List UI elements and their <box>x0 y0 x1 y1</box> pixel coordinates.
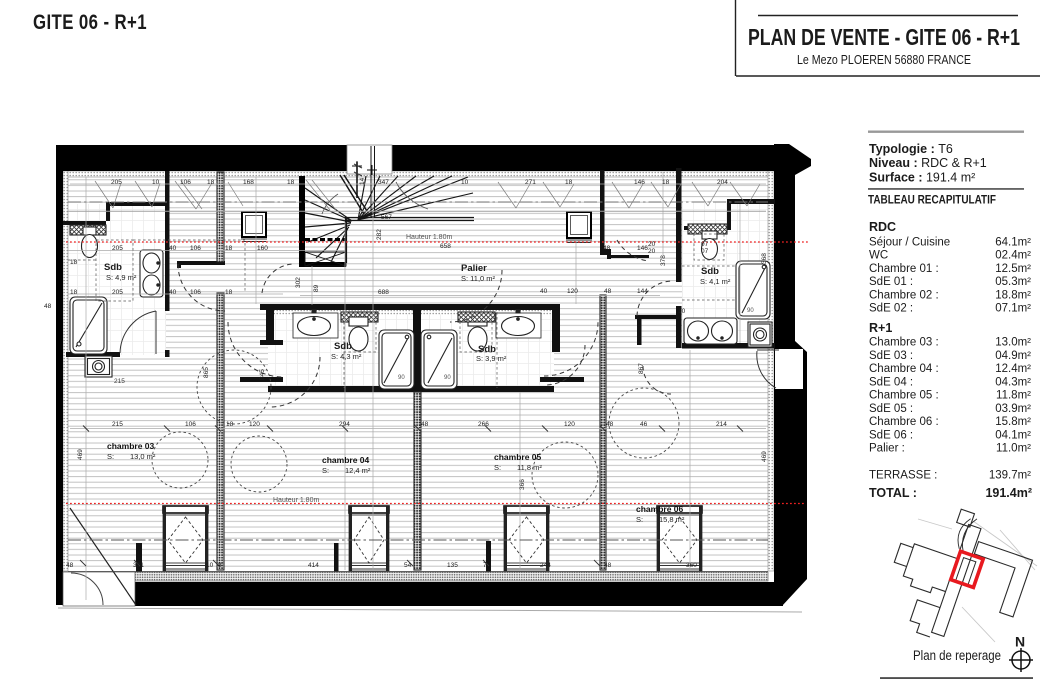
svg-text:12,4 m²: 12,4 m² <box>345 466 371 475</box>
svg-text:S:: S: <box>107 452 114 461</box>
svg-text:40: 40 <box>169 289 177 296</box>
svg-text:214: 214 <box>716 421 727 428</box>
svg-text:Niveau : RDC & R+1: Niveau : RDC & R+1 <box>869 156 987 170</box>
svg-text:Sdb: Sdb <box>104 262 122 273</box>
svg-text:90: 90 <box>444 375 451 381</box>
svg-text:48: 48 <box>604 562 612 569</box>
svg-text:106: 106 <box>190 289 201 296</box>
svg-text:48: 48 <box>603 245 611 252</box>
svg-text:867: 867 <box>638 363 645 374</box>
svg-text:205: 205 <box>112 289 123 296</box>
svg-text:07: 07 <box>701 241 709 248</box>
svg-text:SdE 05 :: SdE 05 : <box>869 403 913 415</box>
svg-text:10: 10 <box>206 562 214 569</box>
svg-text:469: 469 <box>77 449 84 460</box>
svg-text:106: 106 <box>190 245 201 252</box>
svg-text:135: 135 <box>447 562 458 569</box>
svg-text:chambre 06: chambre 06 <box>636 504 684 514</box>
svg-text:Chambre 03 :: Chambre 03 : <box>869 337 939 349</box>
svg-text:18: 18 <box>225 289 233 296</box>
svg-text:18: 18 <box>226 421 234 428</box>
svg-text:Hauteur 1.80m: Hauteur 1.80m <box>273 497 319 504</box>
svg-text:S: 4,3 m²: S: 4,3 m² <box>331 352 362 361</box>
svg-text:567: 567 <box>381 214 392 221</box>
svg-text:48: 48 <box>66 562 74 569</box>
svg-text:SdE 06 :: SdE 06 : <box>869 429 913 441</box>
svg-text:Sdb: Sdb <box>701 266 719 277</box>
svg-text:Palier :: Palier : <box>869 443 905 455</box>
svg-text:RDC: RDC <box>869 220 896 234</box>
svg-text:294: 294 <box>339 421 350 428</box>
svg-text:10: 10 <box>152 179 160 186</box>
svg-text:Chambre 06 :: Chambre 06 : <box>869 416 939 428</box>
svg-text:106: 106 <box>180 179 191 186</box>
svg-text:48: 48 <box>604 288 612 295</box>
svg-text:S: 4,1 m²: S: 4,1 m² <box>700 277 731 286</box>
svg-text:40: 40 <box>540 288 548 295</box>
svg-text:13,0 m²: 13,0 m² <box>130 452 156 461</box>
svg-text:18: 18 <box>225 245 233 252</box>
svg-text:R+1: R+1 <box>869 321 892 335</box>
svg-text:658: 658 <box>440 243 451 250</box>
svg-text:18: 18 <box>287 179 295 186</box>
svg-text:302: 302 <box>295 277 302 288</box>
svg-text:168: 168 <box>243 179 254 186</box>
svg-text:WC: WC <box>869 250 888 262</box>
svg-text:SdE 03 :: SdE 03 : <box>869 350 913 362</box>
svg-text:12.5m²: 12.5m² <box>995 263 1031 275</box>
svg-text:15,8 m²: 15,8 m² <box>659 515 685 524</box>
svg-text:S:: S: <box>494 463 501 472</box>
svg-text:S: 3,9 m²: S: 3,9 m² <box>476 354 507 363</box>
svg-text:139.7m²: 139.7m² <box>989 469 1031 481</box>
svg-text:05.3m²: 05.3m² <box>995 276 1031 288</box>
svg-text:11.0m²: 11.0m² <box>996 443 1031 455</box>
svg-text:89: 89 <box>313 284 320 292</box>
svg-text:368: 368 <box>761 253 768 264</box>
svg-text:18: 18 <box>207 179 215 186</box>
svg-text:271: 271 <box>525 179 536 186</box>
svg-text:146: 146 <box>637 245 648 252</box>
svg-text:07.1m²: 07.1m² <box>995 303 1031 315</box>
svg-text:04.1m²: 04.1m² <box>995 429 1031 441</box>
svg-text:469: 469 <box>761 451 768 462</box>
svg-text:46: 46 <box>640 421 648 428</box>
svg-text:204: 204 <box>717 179 728 186</box>
svg-text:15.8m²: 15.8m² <box>995 416 1031 428</box>
svg-text:414: 414 <box>308 562 319 569</box>
svg-text:18: 18 <box>70 289 78 296</box>
svg-text:chambre 05: chambre 05 <box>494 452 542 462</box>
svg-text:07: 07 <box>701 248 709 255</box>
svg-text:13.0m²: 13.0m² <box>995 337 1031 349</box>
svg-text:10: 10 <box>678 308 686 315</box>
svg-text:282: 282 <box>376 229 383 240</box>
svg-text:54: 54 <box>404 562 412 569</box>
svg-text:S:: S: <box>636 515 643 524</box>
svg-text:48: 48 <box>606 421 614 428</box>
svg-text:215: 215 <box>114 378 125 385</box>
svg-text:215: 215 <box>112 421 123 428</box>
svg-text:TABLEAU RECAPITULATIF: TABLEAU RECAPITULATIF <box>868 195 996 207</box>
svg-text:TERRASSE :: TERRASSE : <box>869 469 937 481</box>
svg-text:120: 120 <box>249 421 260 428</box>
svg-text:20: 20 <box>648 241 656 248</box>
svg-text:205: 205 <box>111 179 122 186</box>
svg-text:378: 378 <box>660 255 667 266</box>
svg-text:Palier: Palier <box>461 263 487 274</box>
svg-text:SdE 04 :: SdE 04 : <box>869 376 913 388</box>
svg-text:48: 48 <box>421 421 429 428</box>
svg-text:S:: S: <box>322 466 329 475</box>
svg-text:Surface : 191.4 m²: Surface : 191.4 m² <box>869 170 975 184</box>
svg-text:90: 90 <box>398 375 405 381</box>
svg-text:7: 7 <box>483 562 487 569</box>
svg-text:244: 244 <box>540 562 551 569</box>
svg-text:144: 144 <box>637 288 648 295</box>
svg-text:366: 366 <box>519 479 526 490</box>
svg-text:Chambre 02 :: Chambre 02 : <box>869 289 939 301</box>
svg-text:160: 160 <box>257 245 268 252</box>
svg-text:S: 11,0 m²: S: 11,0 m² <box>461 274 496 283</box>
svg-text:205: 205 <box>112 245 123 252</box>
svg-text:688: 688 <box>378 289 389 296</box>
svg-text:12.4m²: 12.4m² <box>995 363 1031 375</box>
svg-text:321: 321 <box>133 562 144 569</box>
svg-text:SdE 02 :: SdE 02 : <box>869 303 913 315</box>
svg-text:20: 20 <box>648 248 656 255</box>
svg-text:191.4m²: 191.4m² <box>985 486 1032 500</box>
svg-text:chambre 03: chambre 03 <box>107 441 155 451</box>
svg-text:Plan de reperage: Plan de reperage <box>913 648 1001 663</box>
svg-text:18: 18 <box>565 179 573 186</box>
svg-text:PLAN DE VENTE - GITE 06 - R+1: PLAN DE VENTE - GITE 06 - R+1 <box>748 24 1020 50</box>
svg-text:120: 120 <box>564 421 575 428</box>
svg-text:18: 18 <box>70 259 78 266</box>
svg-text:18: 18 <box>662 179 670 186</box>
svg-text:11.8m²: 11.8m² <box>996 390 1031 402</box>
svg-text:SdE 01 :: SdE 01 : <box>869 276 913 288</box>
svg-text:Chambre 05 :: Chambre 05 : <box>869 390 939 402</box>
svg-text:90: 90 <box>747 308 754 314</box>
svg-text:64.1m²: 64.1m² <box>995 237 1031 249</box>
svg-text:865: 865 <box>203 367 210 378</box>
svg-text:TOTAL :: TOTAL : <box>869 486 917 500</box>
svg-text:106: 106 <box>185 421 196 428</box>
svg-text:03.9m²: 03.9m² <box>995 403 1031 415</box>
svg-text:Sdb: Sdb <box>334 341 352 352</box>
svg-text:14: 14 <box>359 177 366 185</box>
svg-text:845: 845 <box>259 369 266 380</box>
svg-text:8: 8 <box>218 562 222 569</box>
svg-text:Hauteur 1.80m: Hauteur 1.80m <box>406 234 452 241</box>
svg-text:266: 266 <box>478 421 489 428</box>
svg-text:11,8 m²: 11,8 m² <box>517 463 542 472</box>
svg-text:Le Mezo PLOEREN 56880 FRANCE: Le Mezo PLOEREN 56880 FRANCE <box>797 52 971 67</box>
svg-text:Typologie : T6: Typologie : T6 <box>869 142 953 156</box>
svg-text:18.8m²: 18.8m² <box>995 289 1031 301</box>
svg-text:120: 120 <box>567 288 578 295</box>
svg-text:40: 40 <box>169 245 177 252</box>
svg-text:10: 10 <box>461 179 469 186</box>
svg-text:Chambre 04 :: Chambre 04 : <box>869 363 939 375</box>
svg-text:S: 4,9 m²: S: 4,9 m² <box>106 273 137 282</box>
svg-text:146: 146 <box>634 179 645 186</box>
svg-text:chambre 04: chambre 04 <box>322 455 370 465</box>
svg-text:04.3m²: 04.3m² <box>995 376 1031 388</box>
svg-text:48: 48 <box>44 303 52 310</box>
svg-text:Chambre 01 :: Chambre 01 : <box>869 263 939 275</box>
svg-text:GITE 06 - R+1: GITE 06 - R+1 <box>33 11 147 34</box>
svg-text:Séjour / Cuisine: Séjour / Cuisine <box>869 237 950 249</box>
svg-text:347: 347 <box>378 179 389 186</box>
svg-text:360: 360 <box>686 562 697 569</box>
svg-text:N: N <box>1015 634 1025 650</box>
svg-text:04.9m²: 04.9m² <box>995 350 1031 362</box>
svg-text:02.4m²: 02.4m² <box>995 250 1031 262</box>
